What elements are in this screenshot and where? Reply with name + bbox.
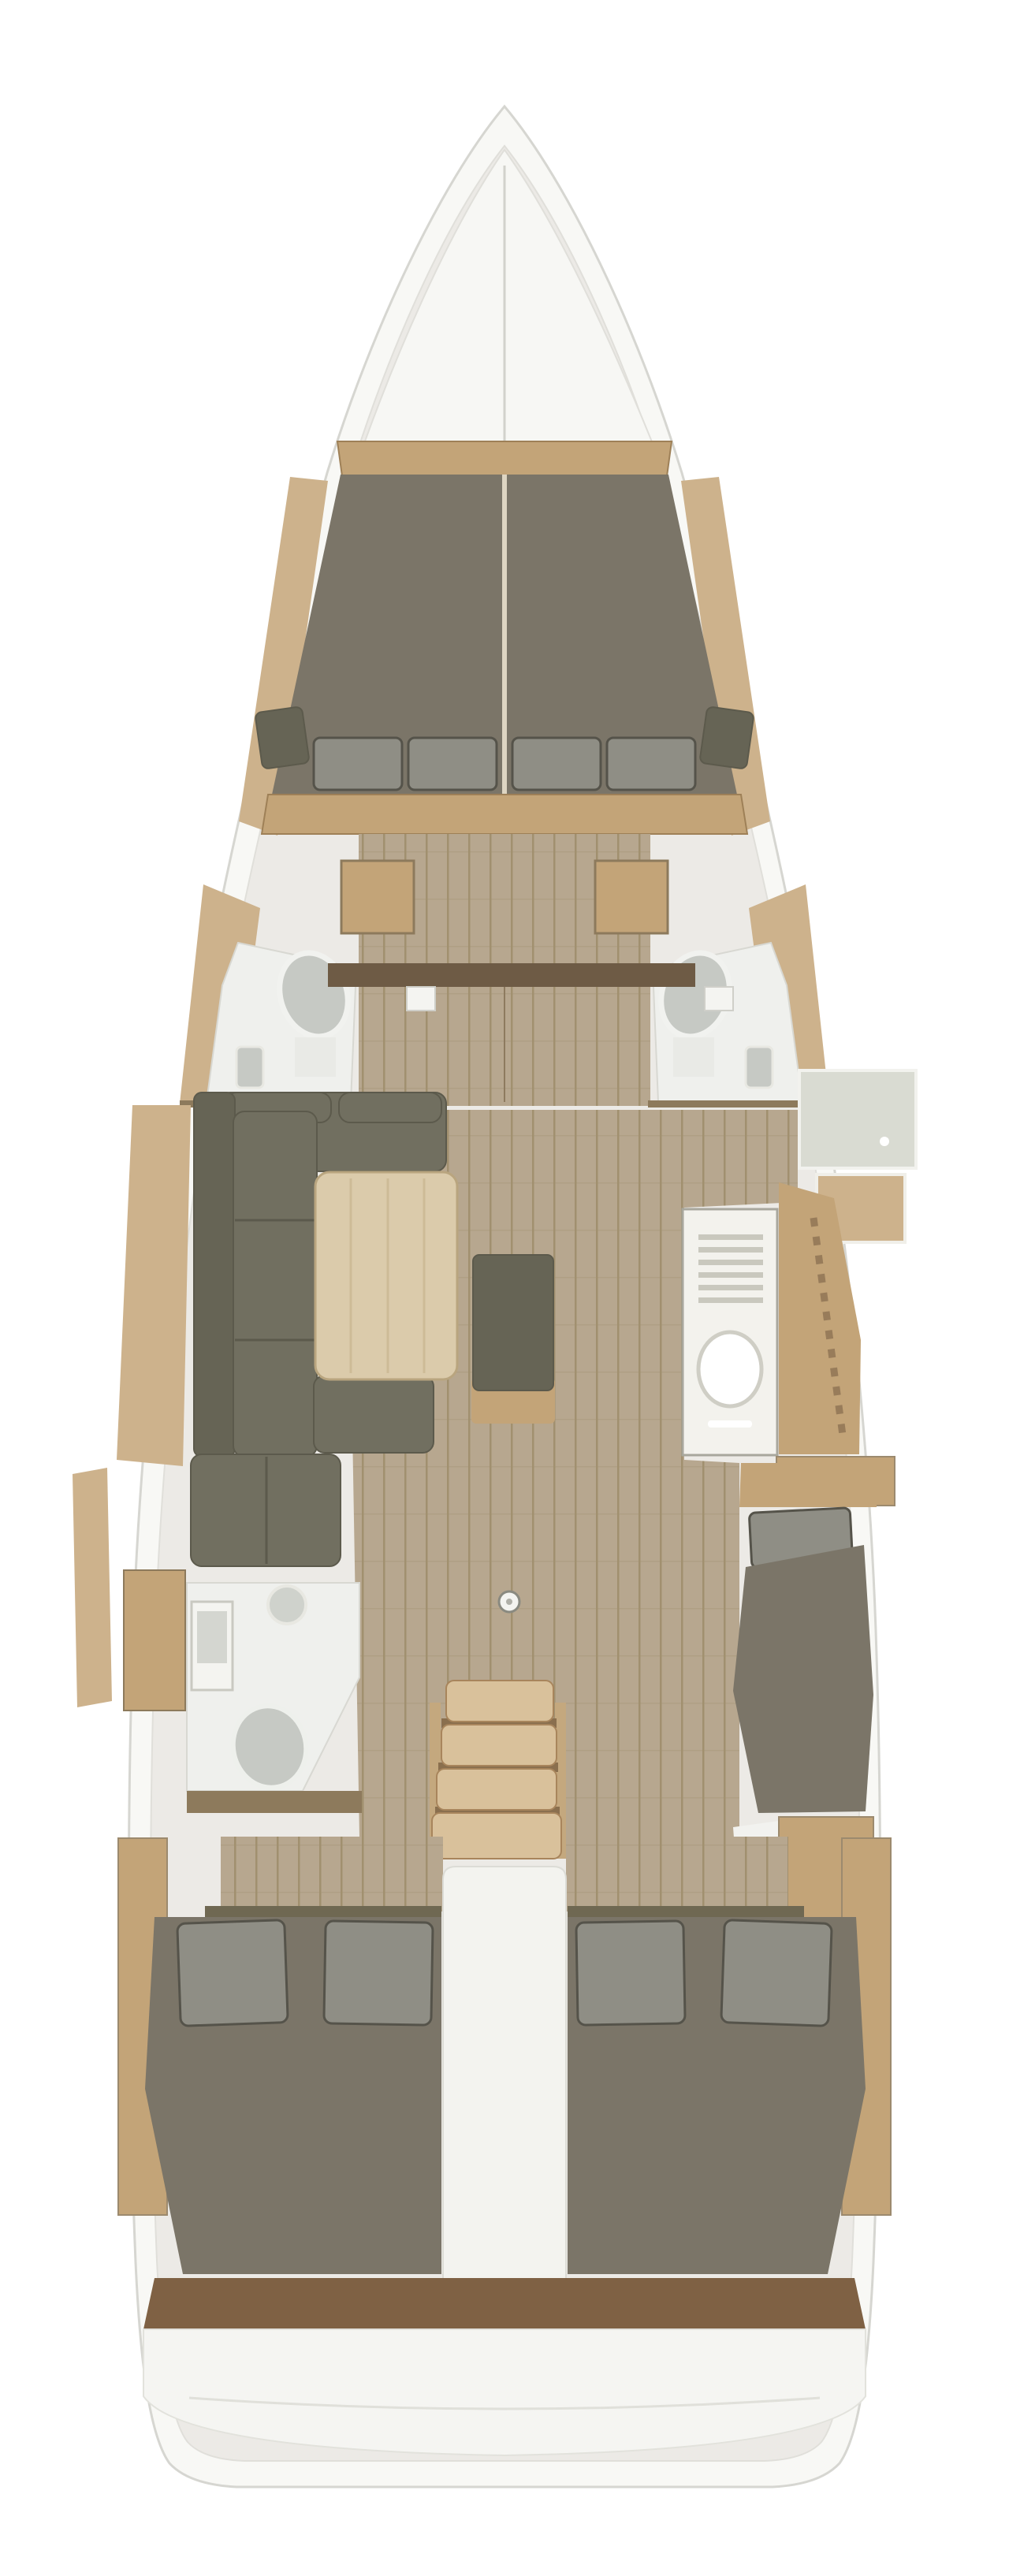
vberth-side-cushion-starboard <box>699 706 754 769</box>
hull-shelf-port <box>117 1105 191 1466</box>
louver <box>698 1297 763 1303</box>
galley-sink <box>698 1332 761 1406</box>
pillow <box>576 1921 685 2025</box>
galley-handle <box>708 1420 752 1428</box>
pillow <box>314 738 402 790</box>
saloon-table <box>315 1172 457 1379</box>
mid-berth-mattress <box>733 1545 873 1813</box>
bulkhead-starboard <box>648 1100 798 1107</box>
louver <box>698 1234 763 1240</box>
mast-step-center <box>506 1599 512 1605</box>
aft-berth-headboard-port <box>205 1906 441 1919</box>
shower-floor <box>799 1070 916 1168</box>
sofa-back-port <box>194 1093 235 1457</box>
deck-plan-svg <box>0 0 1009 2576</box>
aft-head-locker-outboard <box>73 1468 112 1707</box>
aft-berth-headboard-starboard <box>568 1906 804 1919</box>
transom-strip <box>143 2278 866 2329</box>
stern-deck <box>143 2329 866 2455</box>
corridor-crossbar <box>328 963 695 987</box>
aft-head-locker <box>124 1570 185 1711</box>
dresser-starboard <box>595 861 668 933</box>
mid-berth-headboard <box>739 1463 879 1507</box>
bench-cushion <box>473 1255 553 1390</box>
louver <box>698 1272 763 1278</box>
aft-cabin-starboard <box>566 1837 891 2274</box>
dresser-port <box>341 861 414 933</box>
stair-tread <box>437 1769 557 1810</box>
stair-tread <box>441 1725 557 1766</box>
engine-compartment <box>443 1867 566 2314</box>
aft-head-sink <box>268 1586 306 1624</box>
aft-cabin-port <box>118 1837 443 2274</box>
louver <box>698 1247 763 1253</box>
pillow <box>408 738 497 790</box>
aft-cabin-floor-port <box>221 1837 443 1912</box>
shower-drain <box>880 1137 889 1146</box>
aft-head-desk-top <box>197 1611 227 1663</box>
stair-tread <box>446 1681 553 1722</box>
pillow <box>177 1920 288 2027</box>
pillow <box>721 1920 832 2027</box>
aft-cabin-floor-starboard <box>566 1837 788 1912</box>
stair-tread <box>432 1813 561 1859</box>
louver <box>698 1285 763 1290</box>
sofa-seat-port <box>233 1111 317 1457</box>
aft-head-floor-strip <box>187 1791 362 1813</box>
sofa-forward-bolster <box>339 1093 441 1122</box>
toilet-base-starboard <box>673 1037 714 1077</box>
vberth-headboard <box>337 441 672 476</box>
sink-port <box>236 1047 263 1088</box>
door-hinge-port <box>407 987 435 1011</box>
sofa-aft-row <box>314 1375 434 1453</box>
louver <box>698 1260 763 1265</box>
vberth-footboard <box>262 795 747 834</box>
pillow <box>512 738 601 790</box>
pillow <box>607 738 695 790</box>
sink-starboard <box>746 1047 773 1088</box>
toilet-base-port <box>295 1037 336 1077</box>
companionway-stairs <box>430 1681 566 1859</box>
vberth-side-cushion-port <box>255 706 309 769</box>
door-hinge-starboard <box>705 987 733 1011</box>
pillow <box>324 1921 433 2025</box>
deck-plan <box>0 0 1009 2576</box>
